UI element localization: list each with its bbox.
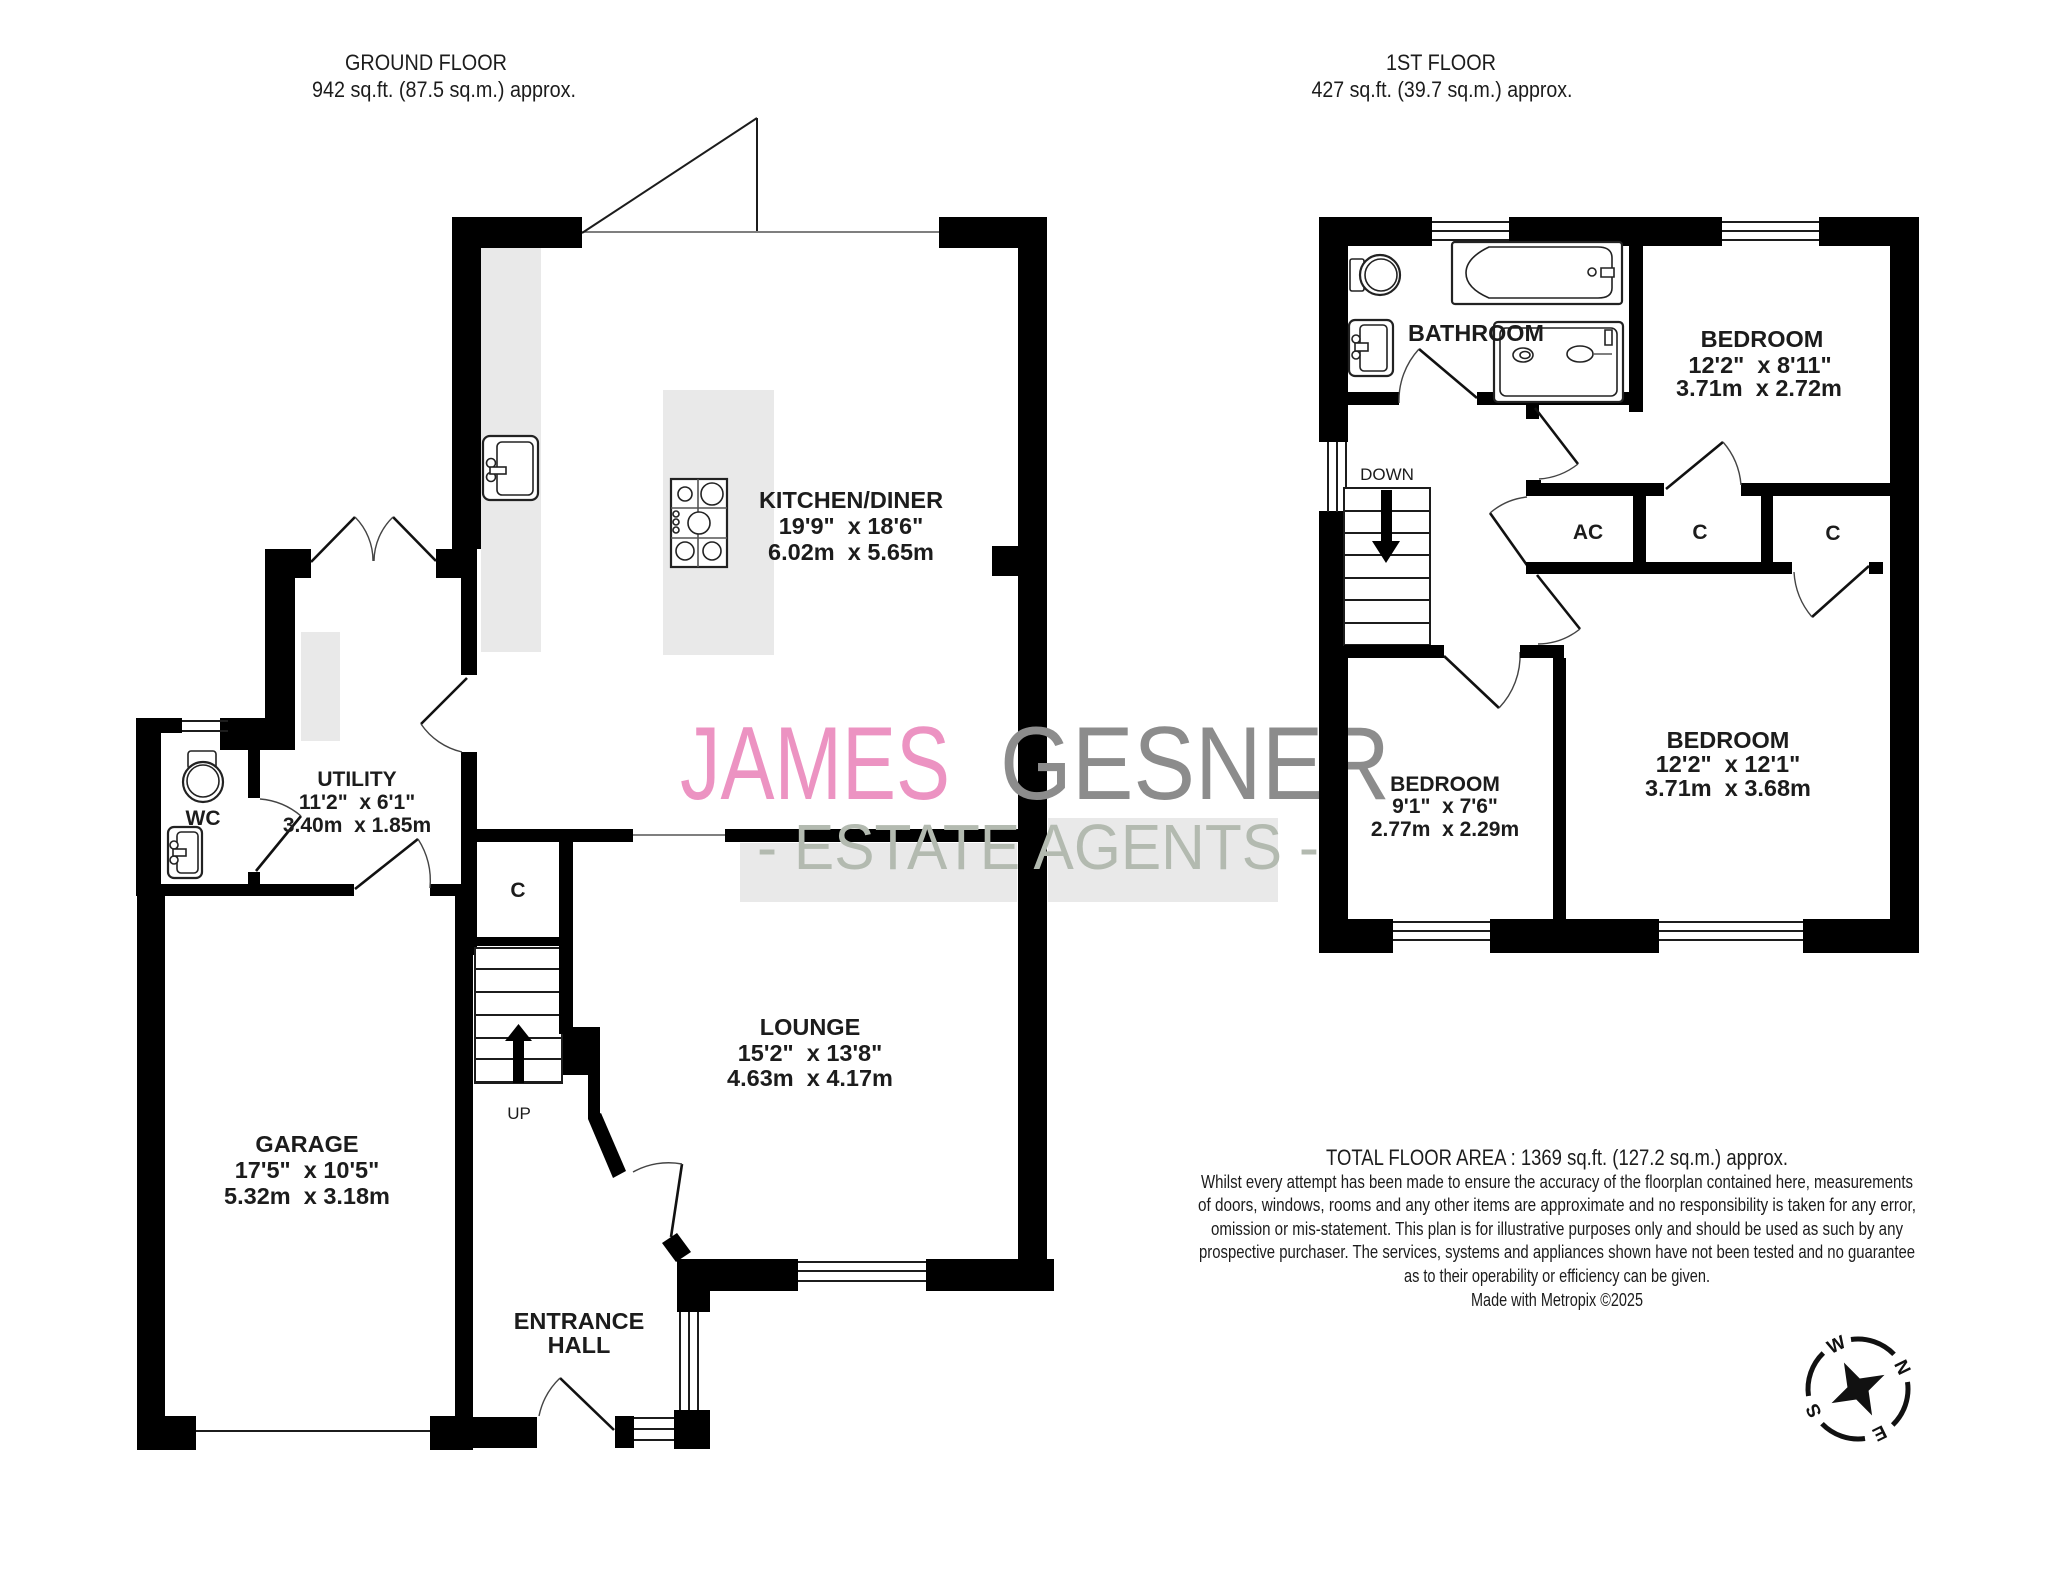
svg-text:C: C [510, 879, 525, 902]
svg-text:2.77m x 2.29m: 2.77m x 2.29m [1371, 818, 1519, 841]
svg-text:UP: UP [507, 1104, 531, 1123]
svg-text:LOUNGE: LOUNGE [760, 1014, 861, 1040]
svg-text:3.40m x 1.85m: 3.40m x 1.85m [283, 814, 431, 837]
svg-text:11'2" x 6'1": 11'2" x 6'1" [299, 791, 415, 814]
svg-text:JAMES: JAMES [680, 706, 950, 822]
svg-text:BEDROOM: BEDROOM [1701, 326, 1824, 352]
svg-text:15'2" x 13'8": 15'2" x 13'8" [738, 1040, 883, 1066]
svg-text:19'9" x 18'6": 19'9" x 18'6" [779, 513, 924, 539]
svg-text:GARAGE: GARAGE [255, 1131, 358, 1157]
svg-text:4.63m x 4.17m: 4.63m x 4.17m [727, 1065, 893, 1091]
svg-text:C: C [1692, 521, 1707, 544]
svg-text:AC: AC [1573, 521, 1603, 544]
svg-text:17'5" x 10'5": 17'5" x 10'5" [235, 1157, 380, 1183]
svg-text:5.32m x 3.18m: 5.32m x 3.18m [224, 1183, 390, 1209]
svg-text:427 sq.ft. (39.7 sq.m.) approx: 427 sq.ft. (39.7 sq.m.) approx. [1312, 77, 1573, 102]
svg-text:HALL: HALL [548, 1332, 611, 1358]
svg-text:BEDROOM: BEDROOM [1667, 727, 1790, 753]
svg-text:ENTRANCE: ENTRANCE [514, 1308, 645, 1334]
svg-text:KITCHEN/DINER: KITCHEN/DINER [759, 487, 943, 513]
svg-text:WC: WC [186, 807, 221, 830]
svg-text:Whilst every attempt has been: Whilst every attempt has been made to en… [1201, 1171, 1913, 1192]
svg-text:BEDROOM: BEDROOM [1390, 773, 1500, 796]
svg-text:942 sq.ft. (87.5 sq.m.) approx: 942 sq.ft. (87.5 sq.m.) approx. [312, 77, 576, 102]
svg-text:9'1" x 7'6": 9'1" x 7'6" [1392, 795, 1498, 818]
svg-text:3.71m x 3.68m: 3.71m x 3.68m [1645, 775, 1811, 801]
svg-text:C: C [1825, 522, 1840, 545]
svg-text:DOWN: DOWN [1360, 465, 1414, 484]
svg-text:of doors, windows, rooms and a: of doors, windows, rooms and any other i… [1198, 1194, 1916, 1215]
svg-text:Made with Metropix ©2025: Made with Metropix ©2025 [1471, 1289, 1643, 1310]
svg-text:1ST FLOOR: 1ST FLOOR [1386, 50, 1496, 75]
svg-text:12'2" x 12'1": 12'2" x 12'1" [1656, 751, 1801, 777]
svg-text:6.02m x 5.65m: 6.02m x 5.65m [768, 539, 934, 565]
svg-text:as to their operability or eff: as to their operability or efficiency ca… [1404, 1265, 1710, 1286]
svg-text:GROUND FLOOR: GROUND FLOOR [345, 50, 507, 75]
svg-text:TOTAL FLOOR AREA : 1369 sq.ft.: TOTAL FLOOR AREA : 1369 sq.ft. (127.2 sq… [1326, 1145, 1788, 1170]
svg-text:- ESTATE AGENTS -: - ESTATE AGENTS - [757, 811, 1319, 883]
svg-text:3.71m x 2.72m: 3.71m x 2.72m [1676, 375, 1842, 401]
svg-text:BATHROOM: BATHROOM [1408, 320, 1544, 346]
svg-text:prospective purchaser. The ser: prospective purchaser. The services, sys… [1199, 1241, 1915, 1262]
svg-text:UTILITY: UTILITY [317, 768, 396, 791]
svg-text:omission or mis-statement. Thi: omission or mis-statement. This plan is … [1211, 1218, 1904, 1239]
